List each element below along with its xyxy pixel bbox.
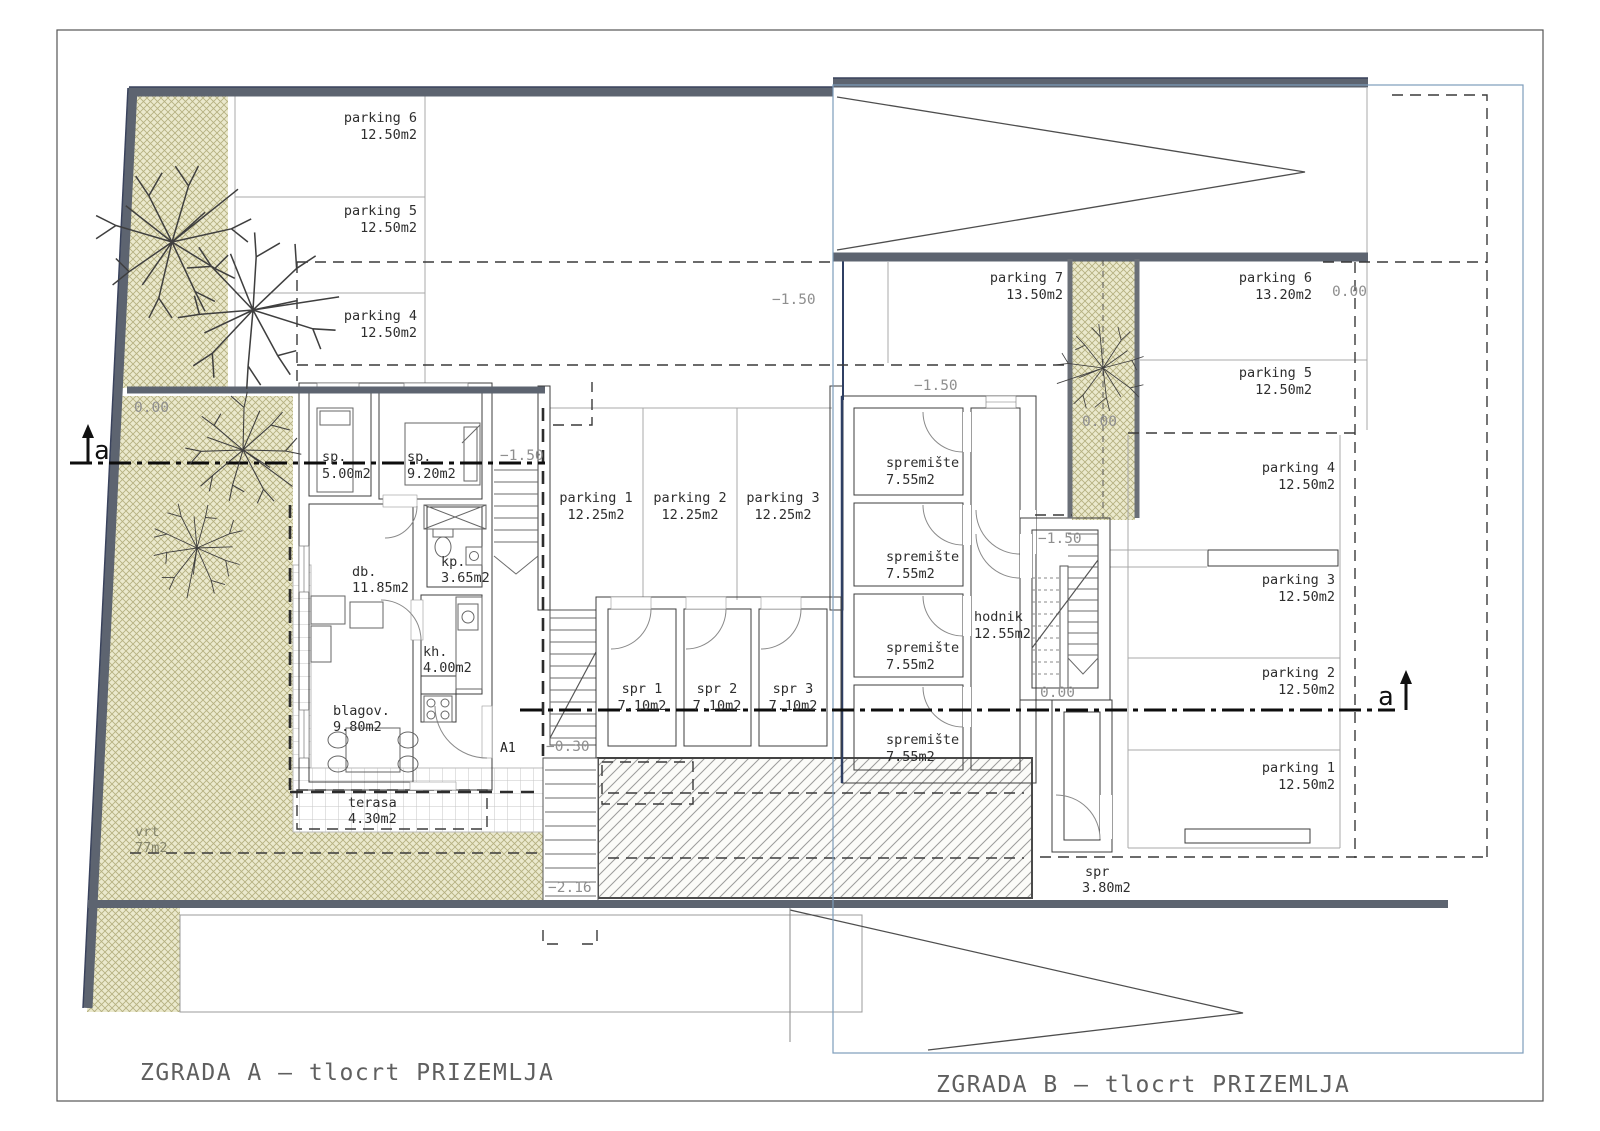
site-plan-svg: parking 6 12.50m2 parking 5 12.50m2 park…	[0, 0, 1600, 1131]
elevation-court-mid: −1.50	[914, 378, 958, 394]
label-sp1-area: 5.00m2	[322, 466, 371, 482]
elevation-court-b: 0.00	[1082, 414, 1117, 430]
label-b-parking2-area: 12.50m2	[1278, 682, 1335, 698]
label-b-parking6-name: parking 6	[1239, 270, 1312, 286]
label-terasa-area: 4.30m2	[348, 811, 397, 827]
label-blagov-name: blagov.	[333, 703, 390, 719]
label-b-parking2-name: parking 2	[1262, 665, 1335, 681]
label-vrt-area: 77m2	[135, 840, 168, 856]
label-spremiste1-name: spremište	[886, 455, 959, 471]
label-spr1-area: 7.10m2	[618, 698, 667, 714]
label-a-parking1-name: parking 1	[559, 490, 632, 506]
label-spr2-area: 7.10m2	[693, 698, 742, 714]
label-spremiste4-name: spremište	[886, 732, 959, 748]
label-sprb-name: spr	[1085, 864, 1109, 880]
floorplan-page: parking 6 12.50m2 parking 5 12.50m2 park…	[0, 0, 1600, 1131]
label-a-parking6-area: 12.50m2	[360, 127, 417, 143]
elevation-stair-b-base: 0.00	[1040, 685, 1075, 701]
label-spremiste1-area: 7.55m2	[886, 472, 935, 488]
elevation-landing-a: −0.30	[546, 739, 590, 755]
label-spremiste4-area: 7.55m2	[886, 749, 935, 765]
label-a-parking6-name: parking 6	[344, 110, 417, 126]
elevation-entry-b: −1.50	[1038, 531, 1082, 547]
elevation-stair-a: −1.50	[500, 448, 544, 464]
label-sp1-name: sp.	[322, 449, 346, 465]
label-a-parking3-name: parking 3	[746, 490, 819, 506]
label-spremiste3-area: 7.55m2	[886, 657, 935, 673]
label-hodnik-name: hodnik	[974, 609, 1023, 625]
label-db-area: 11.85m2	[352, 580, 409, 596]
label-spr3-area: 7.10m2	[769, 698, 818, 714]
building-a-storage	[596, 597, 841, 758]
label-b-parking1-name: parking 1	[1262, 760, 1335, 776]
elevation-street-b: 0.00	[1332, 284, 1367, 300]
label-sp2-area: 9.20m2	[407, 466, 456, 482]
label-kp-name: kp.	[441, 554, 465, 570]
stairs-middle	[550, 610, 596, 745]
label-entrance-a1: A1	[500, 741, 516, 756]
label-a-parking3-area: 12.25m2	[755, 507, 812, 523]
label-a-parking4-name: parking 4	[344, 308, 417, 324]
label-kh-name: kh.	[423, 644, 447, 660]
lower-platform	[180, 915, 862, 1012]
label-kh-area: 4.00m2	[423, 660, 472, 676]
label-a-parking5-area: 12.50m2	[360, 220, 417, 236]
label-spr3-name: spr 3	[773, 681, 814, 697]
label-b-parking6-area: 13.20m2	[1255, 287, 1312, 303]
label-blagov-area: 9.80m2	[333, 719, 382, 735]
label-terasa-name: terasa	[348, 795, 397, 811]
elevation-garden-a: 0.00	[134, 400, 169, 416]
label-spremiste2-name: spremište	[886, 549, 959, 565]
section-marker-right: a	[1378, 682, 1394, 712]
title-zgrada-b: ZGRADA B — tlocrt PRIZEMLJA	[936, 1072, 1350, 1098]
label-b-parking1-area: 12.50m2	[1278, 777, 1335, 793]
label-spr1-name: spr 1	[622, 681, 663, 697]
label-sprb-area: 3.80m2	[1082, 880, 1131, 896]
elevation-ramp-top: −1.50	[772, 292, 816, 308]
label-hodnik-area: 12.55m2	[974, 626, 1031, 642]
label-b-parking3-name: parking 3	[1262, 572, 1335, 588]
label-vrt-name: vrt	[135, 824, 159, 840]
label-sp2-name: sp.	[407, 449, 431, 465]
section-marker-left: a	[94, 436, 110, 466]
building-b-spr	[1052, 700, 1112, 852]
label-db-name: db.	[352, 564, 376, 580]
stairs-a-east	[494, 470, 538, 574]
label-b-parking5-name: parking 5	[1239, 365, 1312, 381]
ramp-area	[598, 758, 1032, 898]
title-zgrada-a: ZGRADA A — tlocrt PRIZEMLJA	[140, 1060, 554, 1086]
label-b-parking7-name: parking 7	[990, 270, 1063, 286]
building-b-storage	[842, 257, 1036, 783]
label-spremiste3-name: spremište	[886, 640, 959, 656]
label-a-parking5-name: parking 5	[344, 203, 417, 219]
label-b-parking3-area: 12.50m2	[1278, 589, 1335, 605]
label-spremiste2-area: 7.55m2	[886, 566, 935, 582]
label-kp-area: 3.65m2	[441, 570, 490, 586]
elevation-stair-bottom: −2.16	[548, 880, 592, 896]
label-spr2-name: spr 2	[697, 681, 738, 697]
label-a-parking1-area: 12.25m2	[568, 507, 625, 523]
label-a-parking4-area: 12.50m2	[360, 325, 417, 341]
label-b-parking4-area: 12.50m2	[1278, 477, 1335, 493]
label-b-parking5-area: 12.50m2	[1255, 382, 1312, 398]
label-a-parking2-name: parking 2	[653, 490, 726, 506]
label-b-parking4-name: parking 4	[1262, 460, 1335, 476]
label-b-parking7-area: 13.50m2	[1006, 287, 1063, 303]
label-a-parking2-area: 12.25m2	[662, 507, 719, 523]
